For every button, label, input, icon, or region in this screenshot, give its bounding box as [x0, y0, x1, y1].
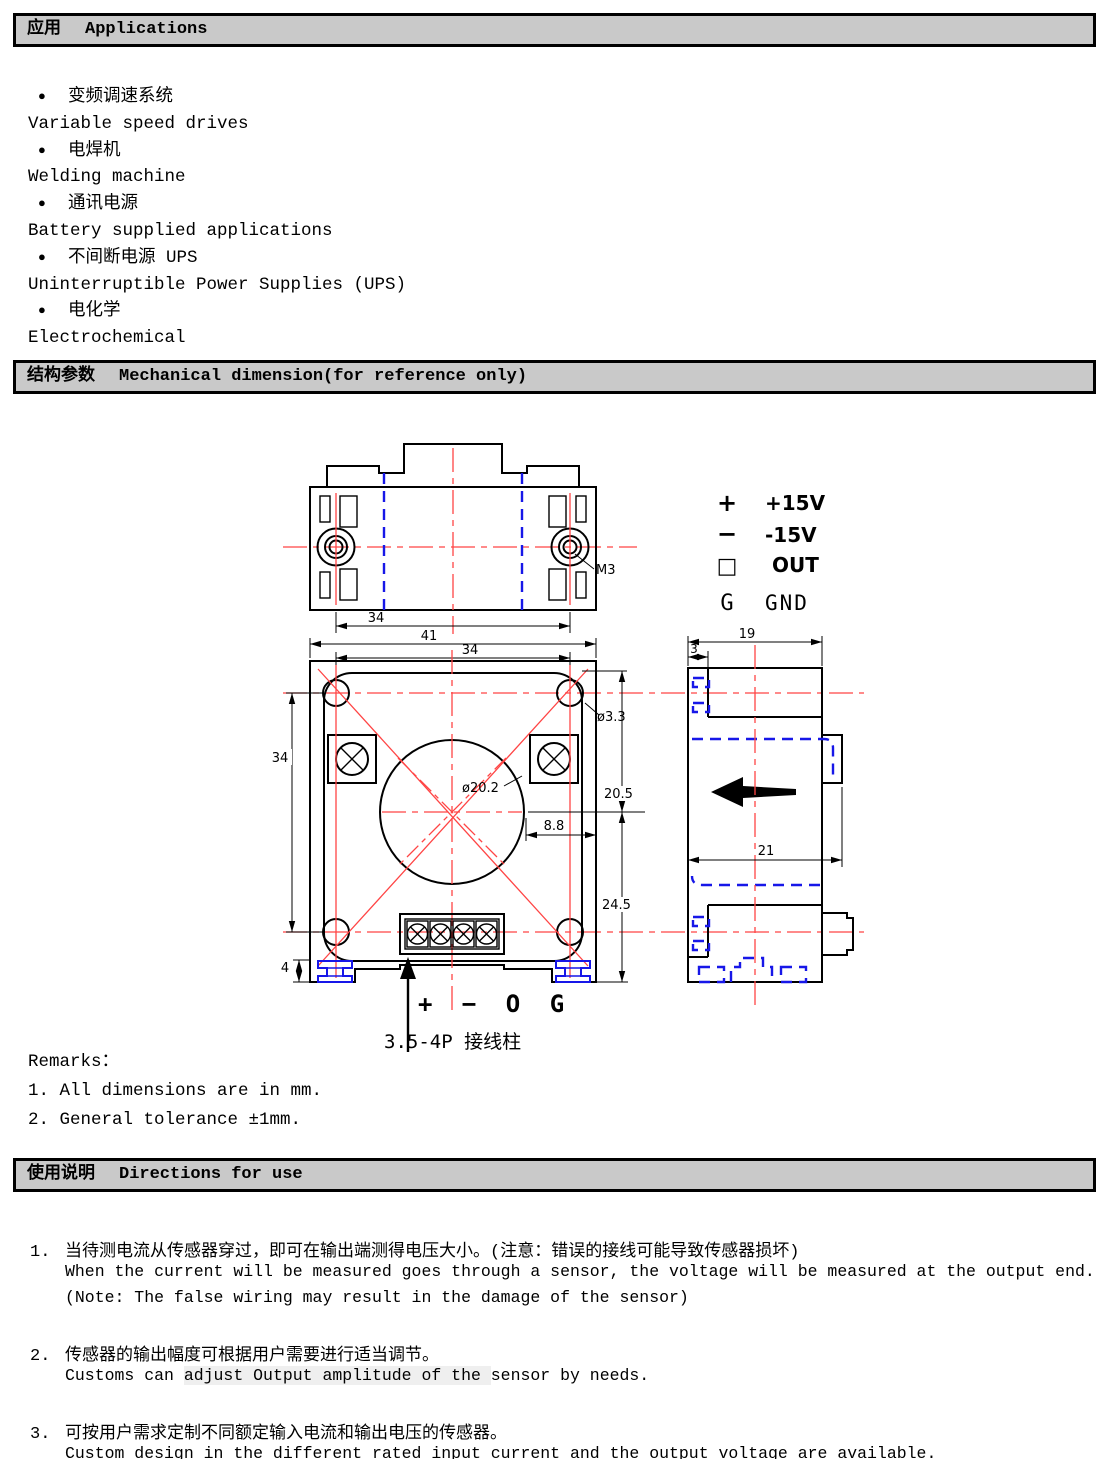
pin-symbol-gnd: G	[720, 591, 733, 616]
direction-zh: 当待测电流从传感器穿过，即可在输出端测得电压大小。(注意：错误的接线可能导致传感…	[65, 1243, 799, 1262]
applications-list: ●变频调速系统 Variable speed drives ●电焊机 Weldi…	[28, 84, 406, 352]
list-item: ●通讯电源 Battery supplied applications	[28, 191, 406, 245]
pin-symbol-out-square: □	[717, 554, 738, 579]
current-direction-arrow-icon	[711, 777, 796, 807]
list-item: ●不间断电源 UPS Uninterruptible Power Supplie…	[28, 245, 406, 299]
datasheet-page: 应用Applications ●变频调速系统 Variable speed dr…	[0, 0, 1112, 1459]
application-en: Battery supplied applications	[28, 218, 406, 245]
direction-en: When the current will be measured goes t…	[65, 1262, 1095, 1281]
pin-label-minus15: -15V	[765, 523, 817, 547]
direction-item: 1.当待测电流从传感器穿过，即可在输出端测得电压大小。(注意：错误的接线可能导致…	[30, 1236, 799, 1262]
list-item: ●电化学 Electrochemical	[28, 298, 406, 352]
pin-label-plus15: +15V	[765, 491, 826, 515]
bullet-icon: ●	[28, 191, 68, 218]
bullet-icon: ●	[28, 245, 68, 272]
dim-offset: 8.8	[544, 819, 565, 834]
direction-en: Customs can adjust Output amplitude of t…	[65, 1366, 649, 1385]
pin-legend: + +15V − -15V □ OUT G GND	[717, 489, 826, 616]
direction-en-pre: Customs can	[65, 1366, 184, 1385]
section-title-zh: 结构参数	[27, 367, 95, 386]
item-number: 1.	[30, 1243, 65, 1262]
remarks-title: Remarks：	[28, 1048, 322, 1077]
front-top-dimensions: 41 34	[310, 629, 596, 678]
application-en: Electrochemical	[28, 325, 406, 352]
pin-label-out: OUT	[772, 553, 819, 577]
dim-overall-width: 41	[421, 629, 438, 644]
application-en: Variable speed drives	[28, 111, 406, 138]
section-title-en: Mechanical dimension(for reference only)	[119, 367, 527, 386]
dim-upper-height: 20.5	[604, 787, 633, 802]
dim-front-hole-spacing-v: 34	[272, 751, 289, 766]
application-en: Uninterruptible Power Supplies (UPS)	[28, 272, 406, 299]
top-view: M3 34	[310, 444, 616, 634]
bullet-icon: ●	[28, 138, 68, 165]
dim-step: 3	[690, 642, 698, 656]
item-number: 2.	[30, 1347, 65, 1366]
terminal-marking: + − O G	[418, 990, 567, 1018]
direction-en-post: sensor by needs.	[491, 1366, 649, 1385]
screw-boss-right	[530, 735, 578, 783]
front-view: ø3.3 ø20.2 34 20.5 24.5 8.8 4 + − O G 3.	[268, 650, 645, 1053]
dim-inner-depth: 21	[758, 844, 775, 859]
application-zh: 电焊机	[68, 141, 121, 161]
mechanical-drawing: M3 34 41 34	[0, 420, 1112, 1060]
section-title-en: Directions for use	[119, 1165, 303, 1184]
application-zh: 变频调速系统	[68, 87, 173, 107]
section-title-zh: 使用说明	[27, 1165, 95, 1184]
direction-en-highlight: adjust Output amplitude of the	[184, 1366, 491, 1385]
direction-item: 2.传感器的输出幅度可根据用户需要进行适当调节。	[30, 1340, 439, 1366]
section-header-applications: 应用Applications	[13, 13, 1096, 47]
dim-front-hole-spacing-h: 34	[462, 643, 479, 658]
terminal-note: 3.5-4P 接线柱	[384, 1031, 521, 1053]
thread-label: M3	[596, 563, 616, 578]
list-item: ●变频调速系统 Variable speed drives	[28, 84, 406, 138]
section-header-mechanical: 结构参数Mechanical dimension(for reference o…	[13, 360, 1096, 394]
mounting-foot-left	[318, 961, 352, 982]
application-en: Welding machine	[28, 164, 406, 191]
side-view: 19 3 21	[688, 627, 853, 1005]
direction-item: 3.可按用户需求定制不同额定输入电流和输出电压的传感器。	[30, 1418, 507, 1444]
dim-depth: 19	[739, 627, 756, 642]
mounting-hole-left	[318, 496, 358, 600]
mounting-hole-right	[549, 496, 589, 600]
application-zh: 电化学	[68, 301, 121, 321]
bullet-icon: ●	[28, 298, 68, 325]
dim-top-hole-spacing: 34	[368, 611, 385, 626]
dim-aperture-dia: ø20.2	[462, 781, 499, 796]
dim-foot-height: 4	[281, 961, 289, 976]
direction-zh: 可按用户需求定制不同额定输入电流和输出电压的传感器。	[65, 1425, 507, 1444]
direction-en: Custom design in the different rated inp…	[65, 1444, 936, 1459]
pin-label-gnd: GND	[765, 591, 809, 615]
section-title-zh: 应用	[27, 20, 61, 39]
list-item: ●电焊机 Welding machine	[28, 138, 406, 192]
remark-line: 2. General tolerance ±1mm.	[28, 1106, 322, 1135]
application-zh: 通讯电源	[68, 194, 138, 214]
remarks-block: Remarks： 1. All dimensions are in mm. 2.…	[28, 1048, 322, 1135]
section-header-directions: 使用说明Directions for use	[13, 1158, 1096, 1192]
mounting-foot-right	[556, 961, 590, 982]
item-number: 3.	[30, 1425, 65, 1444]
direction-zh: 传感器的输出幅度可根据用户需要进行适当调节。	[65, 1347, 439, 1366]
bullet-icon: ●	[28, 84, 68, 111]
dim-corner-hole-dia: ø3.3	[597, 710, 626, 725]
application-zh: 不间断电源 UPS	[68, 248, 198, 268]
pin-symbol-minus: −	[717, 520, 737, 548]
screw-boss-left	[328, 735, 376, 783]
remark-line: 1. All dimensions are in mm.	[28, 1077, 322, 1106]
direction-en: (Note: The false wiring may result in th…	[65, 1288, 689, 1307]
pin-symbol-plus: +	[717, 489, 737, 517]
dim-lower-height: 24.5	[602, 898, 631, 913]
section-title-en: Applications	[85, 20, 207, 39]
